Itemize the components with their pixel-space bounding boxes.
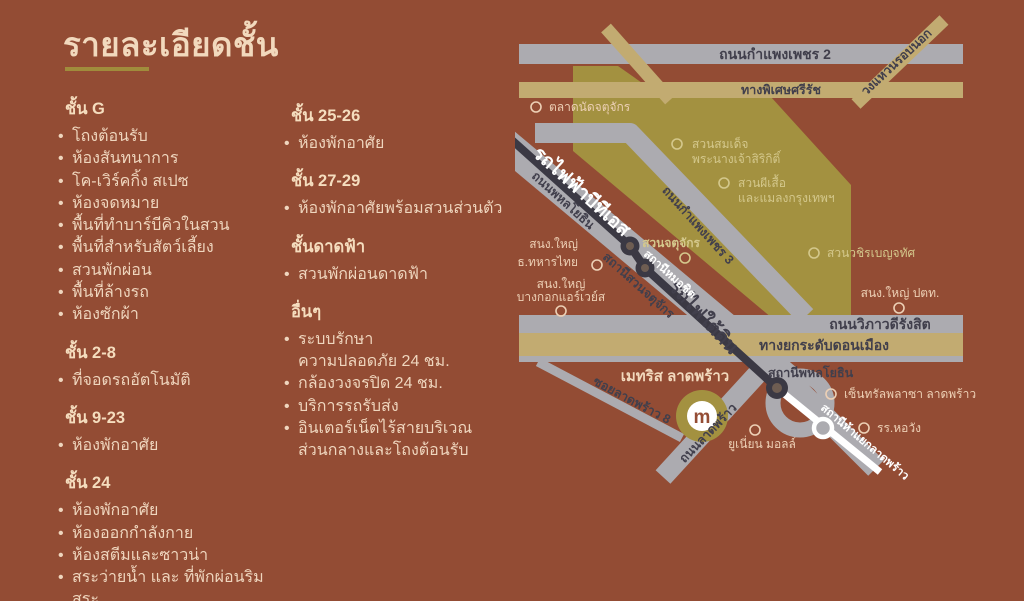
location-map: m ถนนกำแพงเพชร 2 ทางพิเศษศรีรัช วงแหวนรอ… (515, 0, 1024, 601)
floor-item: ที่จอดรถอัตโนมัติ (57, 370, 275, 392)
floor-item: พื้นที่ทำบาร์บีคิวในสวน (57, 215, 275, 237)
brochure-page: รายละเอียดชั้น ชั้น G โถงต้อนรับ ห้องสัน… (0, 0, 1024, 601)
floor-item: ห้องสันทนาการ (57, 148, 275, 170)
ptt-hq-label: สนง.ใหญ่ ปตท. (861, 286, 940, 300)
floor-item: ห้องซักผ้า (57, 304, 275, 326)
chatuchak-market-marker (531, 102, 541, 112)
floor-section-header: ชั้น G (65, 96, 275, 122)
tmb-hq-marker (592, 260, 602, 270)
floor-section-2-8: ชั้น 2-8 ที่จอดรถอัตโนมัติ (57, 340, 275, 392)
road-don-mueang-label: ทางยกระดับดอนเมือง (759, 337, 889, 353)
floor-item: สวนพักผ่อน (57, 260, 275, 282)
floor-item: สวนพักผ่อนดาดฟ้า (283, 264, 513, 286)
bangkok-airways-hq-label-1: สนง.ใหญ่ (537, 277, 586, 291)
floor-section-24: ชั้น 24 ห้องพักอาศัย ห้องออกกำลังกาย ห้อ… (57, 470, 275, 601)
union-mall-label: ยูเนี่ยน มอลล์ (728, 435, 796, 452)
floor-item: ห้องพักอาศัย (57, 435, 275, 457)
station-phahonyothin-marker (766, 377, 788, 399)
station-ha-yaek-ladprao-marker (814, 419, 832, 437)
page-title: รายละเอียดชั้น (63, 18, 279, 71)
tmb-hq-label-2: ธ.ทหารไทย (517, 255, 578, 269)
floors-column-2: ชั้น 25-26 ห้องพักอาศัย ชั้น 27-29 ห้องพ… (283, 103, 513, 476)
chatuchak-park-label: สวนจตุจักร (642, 236, 700, 251)
station-mo-chit-marker (621, 237, 640, 256)
floor-section-27-29: ชั้น 27-29 ห้องพักอาศัยพร้อมสวนส่วนตัว (283, 168, 513, 220)
horwang-school-label: รร.หอวัง (877, 421, 921, 435)
floor-item: ระบบรักษา ความปลอดภัย 24 ชม. (283, 329, 513, 374)
ptt-hq-marker (894, 303, 904, 313)
bangkok-airways-hq-label-2: บางกอกแอร์เวย์ส (517, 290, 606, 304)
station-phahonyothin-label: สถานีพหลโยธิน (768, 365, 854, 380)
project-name-label: เมทริส ลาดพร้าว (621, 367, 729, 385)
floor-item: โถงต้อนรับ (57, 126, 275, 148)
butterfly-garden-label-2: และแมลงกรุงเทพฯ (738, 191, 835, 206)
floor-item: ห้องพักอาศัยพร้อมสวนส่วนตัว (283, 198, 513, 220)
floor-item: กล้องวงจรปิด 24 ชม. (283, 373, 513, 395)
central-plaza-label: เซ็นทรัลพลาซา ลาดพร้าว (844, 386, 976, 401)
floors-column-1: ชั้น G โถงต้อนรับ ห้องสันทนาการ โค-เวิร์… (57, 96, 275, 601)
road-si-rat-expressway-label: ทางพิเศษศรีรัช (741, 83, 821, 97)
floor-section-header: ชั้น 25-26 (291, 103, 513, 129)
butterfly-garden-label-1: สวนผีเสื้อ (738, 174, 786, 190)
floor-item: โค-เวิร์คกิ้ง สเปซ (57, 171, 275, 193)
floor-section-header: ชั้น 27-29 (291, 168, 513, 194)
floor-section-header: ชั้นดาดฟ้า (291, 234, 513, 260)
horwang-school-marker (859, 423, 869, 433)
road-kamphaeng-phet-2-label: ถนนกำแพงเพชร 2 (719, 46, 831, 62)
union-mall-marker (750, 425, 760, 435)
floor-item: ห้องพักอาศัย (283, 133, 513, 155)
floor-section-9-23: ชั้น 9-23 ห้องพักอาศัย (57, 405, 275, 457)
floor-item: พื้นที่ล้างรถ (57, 282, 275, 304)
floor-item: บริการรถรับส่ง (283, 396, 513, 418)
floor-section-others: อื่นๆ ระบบรักษา ความปลอดภัย 24 ชม. กล้อง… (283, 299, 513, 463)
road-vibhavadi-label: ถนนวิภาวดีรังสิต (829, 316, 931, 332)
floor-item: ห้องพักอาศัย (57, 500, 275, 522)
title-underline (65, 67, 149, 71)
floor-item: ห้องสตีมและซาวน่า (57, 545, 275, 567)
floor-item: ห้องจดหมาย (57, 193, 275, 215)
floor-section-header: ชั้น 2-8 (65, 340, 275, 366)
chatuchak-market-label: ตลาดนัดจตุจักร (549, 100, 631, 115)
queen-sirikit-park-label-2: พระนางเจ้าสิริกิติ์ (692, 150, 782, 166)
floor-item: สระว่ายน้ำ และ ที่พักผ่อนริมสระ (57, 567, 275, 601)
floor-section-header: ชั้น 9-23 (65, 405, 275, 431)
floor-section-rooftop: ชั้นดาดฟ้า สวนพักผ่อนดาดฟ้า (283, 234, 513, 286)
bangkok-airways-hq-marker (556, 306, 566, 316)
floor-section-header: อื่นๆ (291, 299, 513, 325)
tmb-hq-label-1: สนง.ใหญ่ (529, 237, 578, 251)
floor-section-25-26: ชั้น 25-26 ห้องพักอาศัย (283, 103, 513, 155)
floor-section-header: ชั้น 24 (65, 470, 275, 496)
queen-sirikit-park-label-1: สวนสมเด็จ (692, 136, 748, 151)
wachirabenchathat-park-label: สวนวชิรเบญจทัศ (827, 246, 915, 260)
floor-item: อินเตอร์เน็ตไร้สายบริเวณ ส่วนกลางและโถงต… (283, 418, 513, 463)
floor-item: พื้นที่สำหรับสัตว์เลี้ยง (57, 237, 275, 259)
chatuchak-park-marker (680, 253, 690, 263)
floor-section-g: ชั้น G โถงต้อนรับ ห้องสันทนาการ โค-เวิร์… (57, 96, 275, 327)
floor-item: ห้องออกกำลังกาย (57, 523, 275, 545)
